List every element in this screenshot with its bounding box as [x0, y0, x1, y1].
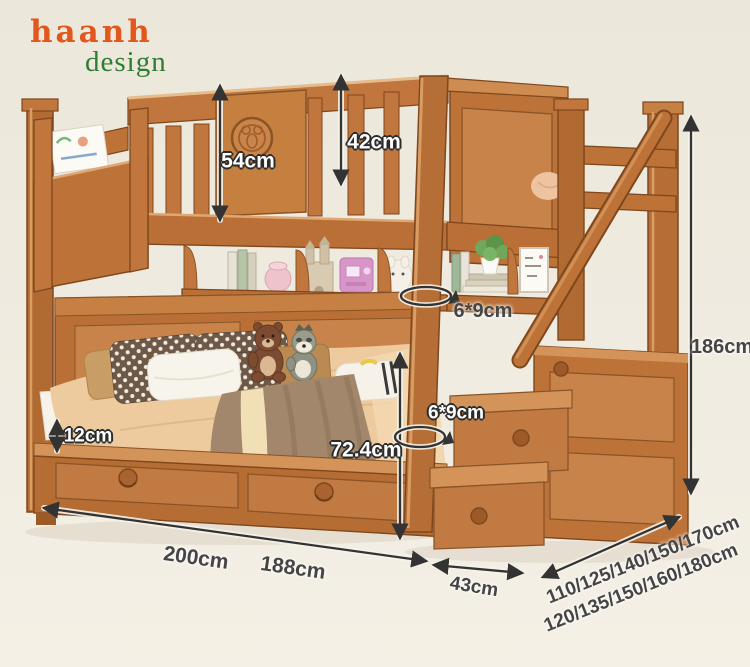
dim-rail-height-label: 54cm: [221, 151, 275, 172]
dim-clearance-label: 72.4cm: [330, 440, 401, 461]
product-dimension-diagram: haanh design 54cm 42cm 6*9cm 6*9cm 72.4c…: [0, 0, 750, 667]
picture-book: [49, 125, 108, 174]
dim-post-upper-label: 6*9cm: [454, 301, 513, 321]
dim-mattress-edge-label: 12cm: [64, 427, 113, 446]
lower-bunk: [34, 292, 447, 537]
book-pocket: [34, 108, 148, 292]
dim-guard-height-label: 42cm: [347, 132, 401, 153]
brand-logo-tagline: design: [85, 46, 167, 79]
dim-overall-height-label: 186cm: [691, 337, 750, 357]
brand-logo-name: haanh: [30, 14, 153, 50]
dim-post-lower-label: 6*9cm: [428, 404, 484, 423]
